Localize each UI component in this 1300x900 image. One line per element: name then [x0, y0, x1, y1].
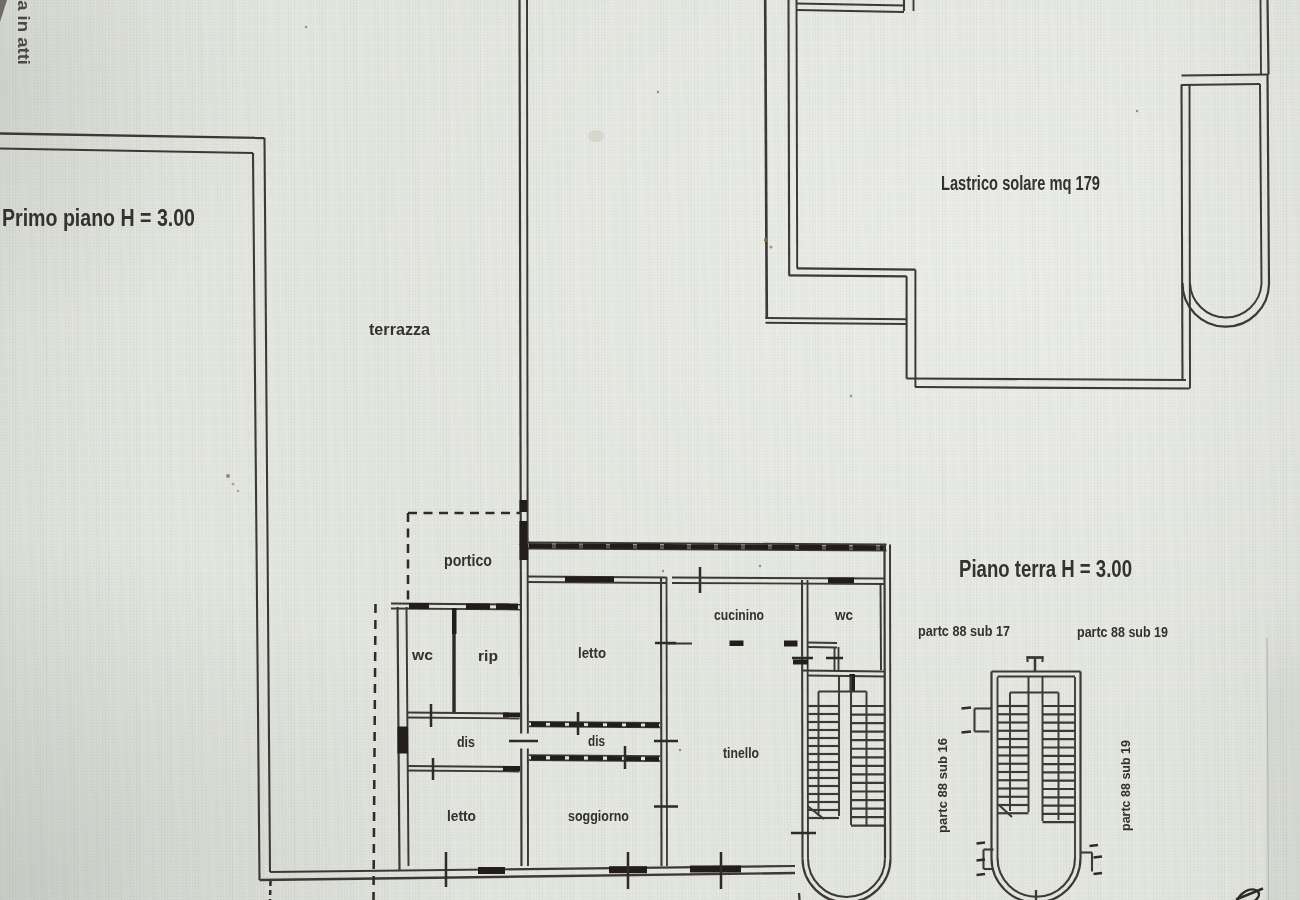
svg-text:letto: letto	[447, 807, 476, 824]
svg-text:partc 88 sub 16: partc 88 sub 16	[935, 738, 950, 833]
svg-text:portico: portico	[444, 551, 492, 570]
svg-text:Lastrico solare mq 179: Lastrico solare mq 179	[941, 172, 1100, 194]
svg-text:soggiorno: soggiorno	[568, 807, 629, 824]
svg-text:dis: dis	[457, 733, 475, 750]
svg-text:dis: dis	[588, 732, 605, 749]
svg-text:terrazza: terrazza	[369, 320, 431, 339]
svg-text:wc: wc	[411, 646, 433, 663]
svg-text:ia in atti: ia in atti	[15, 0, 33, 65]
svg-text:Primo piano H = 3.00: Primo piano H = 3.00	[2, 204, 195, 231]
svg-text:tinello: tinello	[723, 744, 759, 761]
svg-text:cucinino: cucinino	[714, 606, 764, 623]
svg-text:wc: wc	[834, 606, 853, 623]
svg-text:partc 88 sub 19: partc 88 sub 19	[1118, 740, 1133, 831]
svg-text:partc 88 sub 17: partc 88 sub 17	[918, 623, 1010, 639]
svg-text:letto: letto	[578, 644, 606, 661]
svg-text:partc 88 sub 19: partc 88 sub 19	[1077, 624, 1168, 640]
svg-text:Piano terra H = 3.00: Piano terra H = 3.00	[959, 555, 1132, 582]
svg-text:rip: rip	[478, 647, 498, 664]
